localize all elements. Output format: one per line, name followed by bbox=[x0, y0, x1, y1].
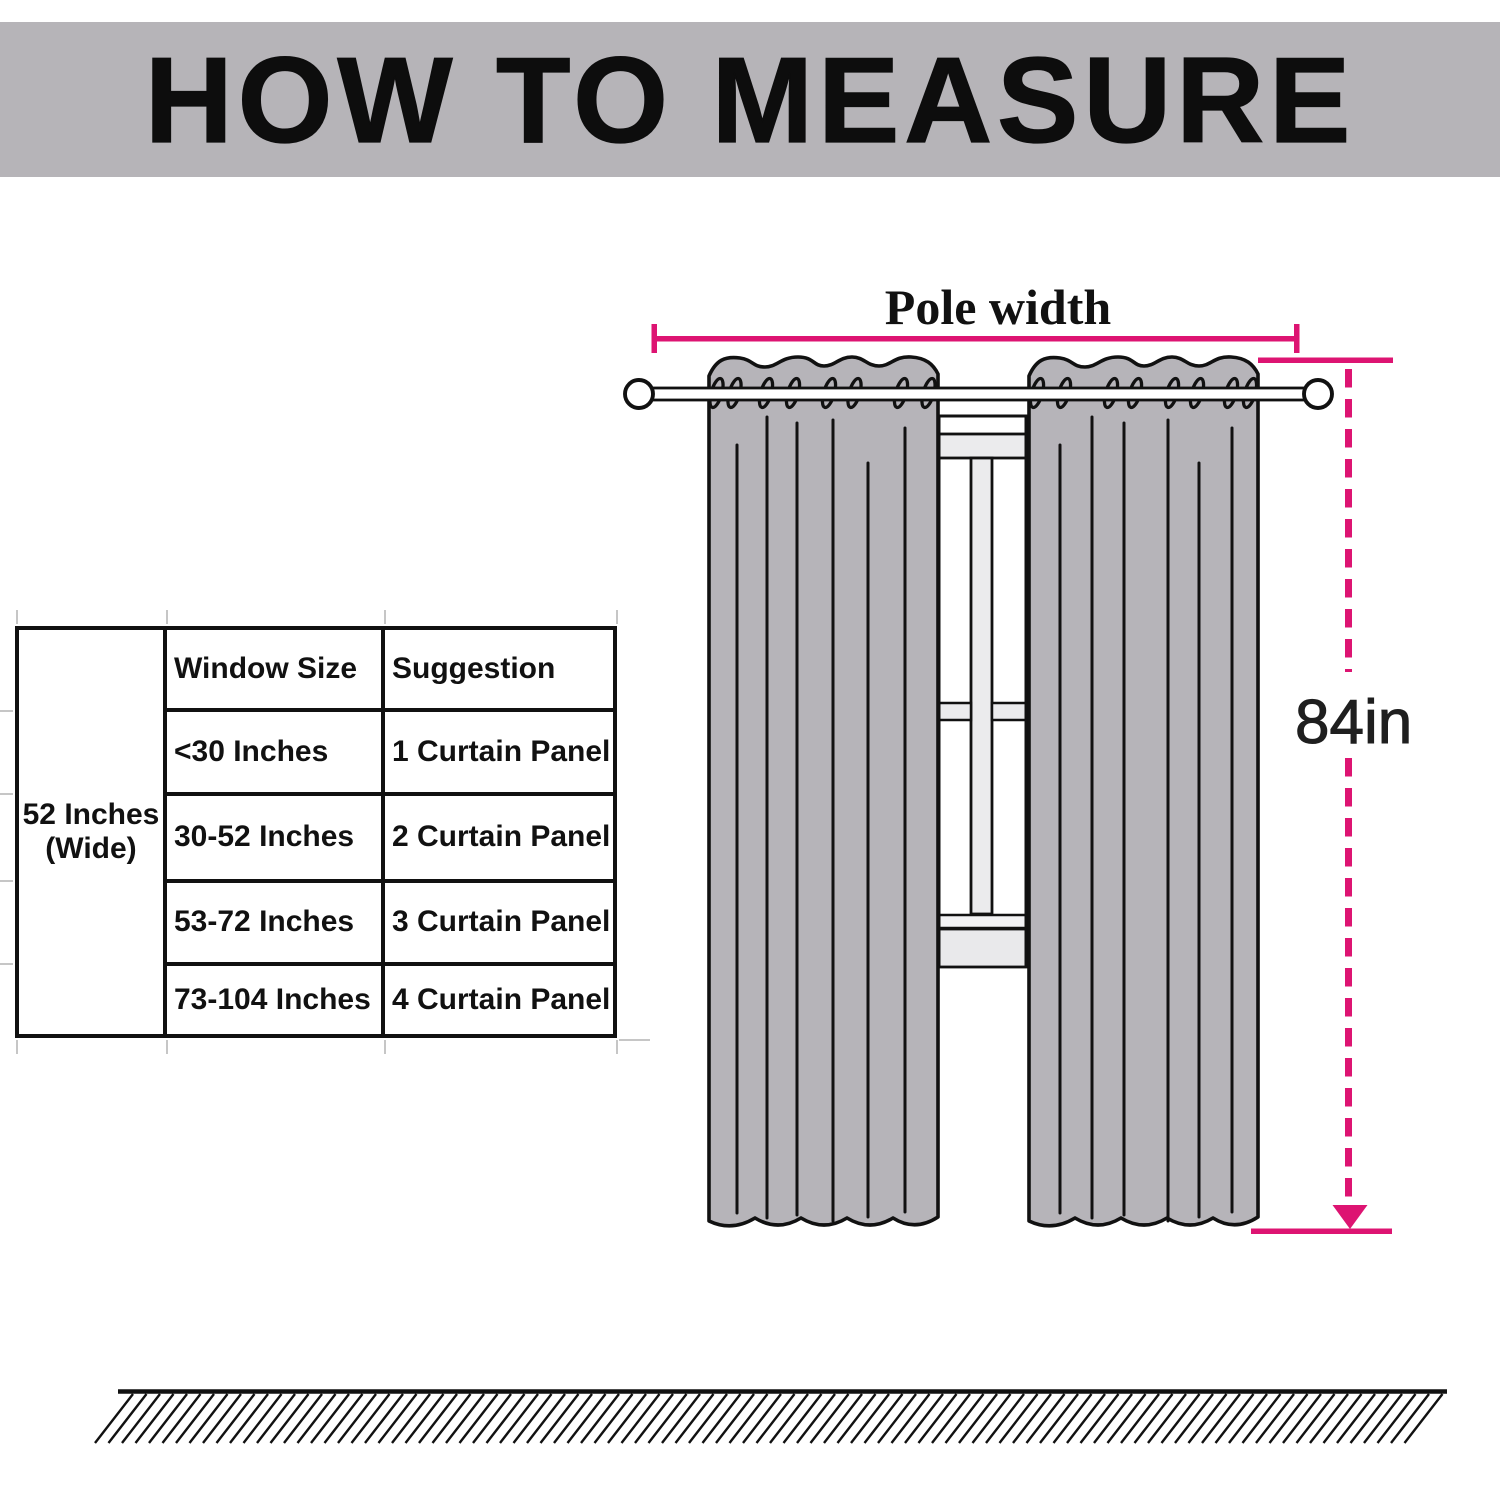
svg-text:Pole width: Pole width bbox=[885, 279, 1112, 335]
svg-text:84in: 84in bbox=[1295, 688, 1412, 757]
